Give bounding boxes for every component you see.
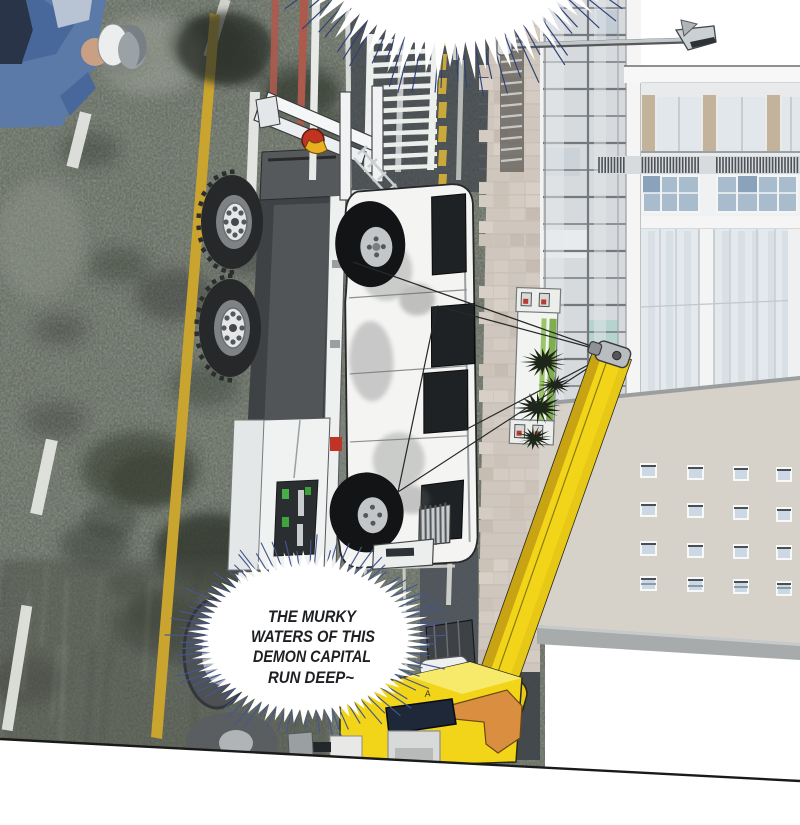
svg-text:WATERS OF THIS: WATERS OF THIS bbox=[251, 627, 376, 646]
svg-text:THE MURKY: THE MURKY bbox=[268, 607, 357, 626]
svg-text:DEMON CAPITAL: DEMON CAPITAL bbox=[253, 647, 371, 666]
svg-text:A: A bbox=[423, 688, 431, 699]
svg-text:RUN DEEP~: RUN DEEP~ bbox=[268, 668, 354, 687]
